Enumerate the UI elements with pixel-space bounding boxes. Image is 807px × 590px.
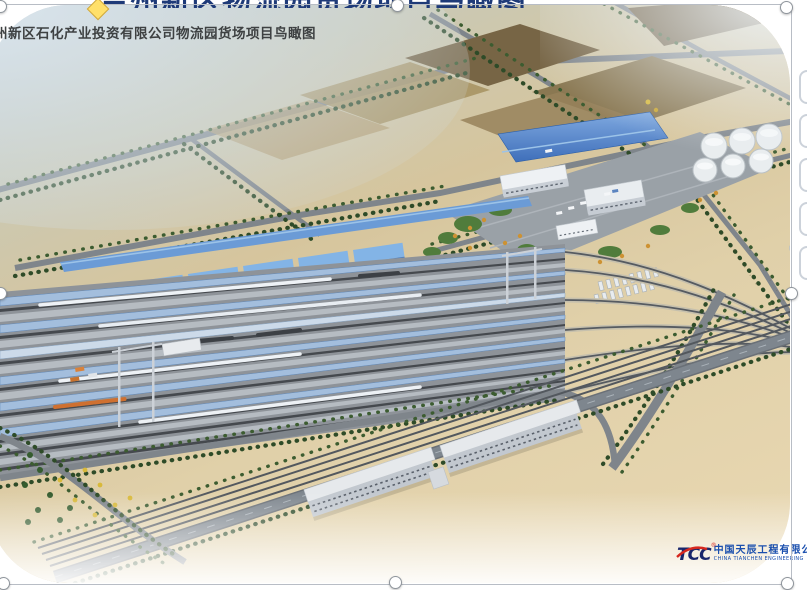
- small-tank-farm: [790, 223, 791, 264]
- right-edge-clipped-shape: [799, 158, 807, 192]
- right-edge-clipped-shape: [799, 70, 807, 104]
- right-edge-clipped-shape: [799, 202, 807, 236]
- logo-name-cn: 中国天辰工程有限公司: [714, 545, 807, 556]
- aerial-rendering-image[interactable]: [0, 5, 790, 583]
- logo-swoosh-icon: [675, 542, 709, 562]
- logo-registered-mark: ®: [711, 542, 717, 549]
- resize-handle-bottom-center[interactable]: [389, 576, 402, 589]
- resize-handle-middle-right[interactable]: [785, 287, 798, 300]
- right-edge-clipped-shape: [799, 246, 807, 280]
- right-edge-clipped-shape: [799, 114, 807, 148]
- clipped-slide-title: 兰州新区物流园货场项目鸟瞰图: [100, 0, 527, 8]
- tcc-logo: TCC ® 中国天辰工程有限公司 CHINA TIANCHEN ENGINEER…: [677, 545, 807, 564]
- slide-canvas: { "slide": { "clipped_title_text": "兰州新区…: [0, 0, 807, 587]
- resize-handle-top-right[interactable]: [780, 1, 793, 14]
- aerial-scene: [0, 5, 790, 583]
- image-caption: 兰州新区石化产业投资有限公司物流园货场项目鸟瞰图: [0, 22, 316, 42]
- clipped-slide-title-text: 兰州新区物流园货场项目鸟瞰图: [100, 0, 527, 8]
- logo-name-en: CHINA TIANCHEN ENGINEERING: [714, 556, 807, 562]
- resize-handle-bottom-left[interactable]: [0, 577, 10, 590]
- resize-handle-bottom-right[interactable]: [781, 577, 794, 590]
